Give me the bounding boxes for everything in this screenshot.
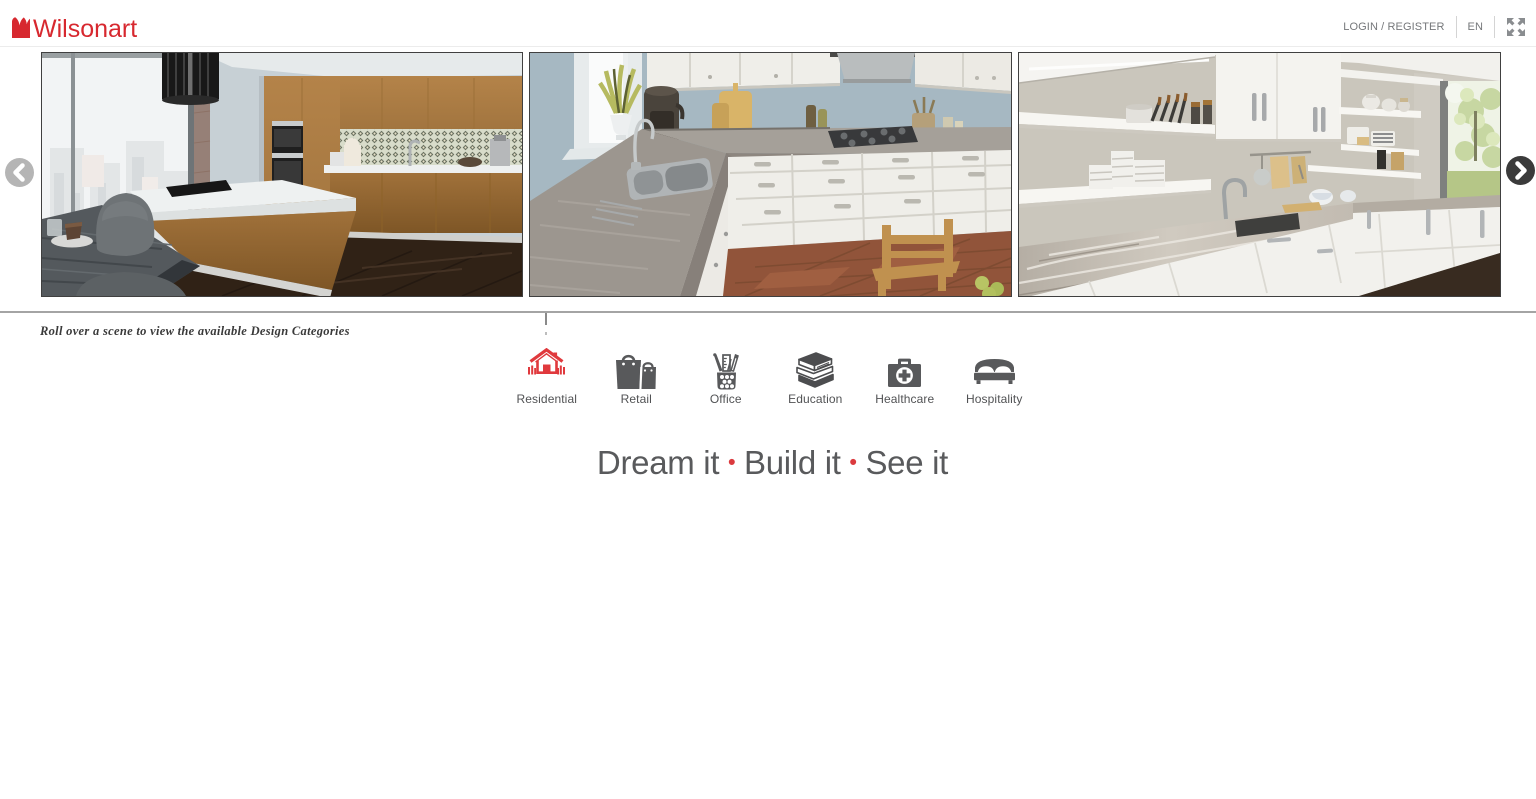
svg-text:Wilsonart: Wilsonart <box>33 16 137 40</box>
